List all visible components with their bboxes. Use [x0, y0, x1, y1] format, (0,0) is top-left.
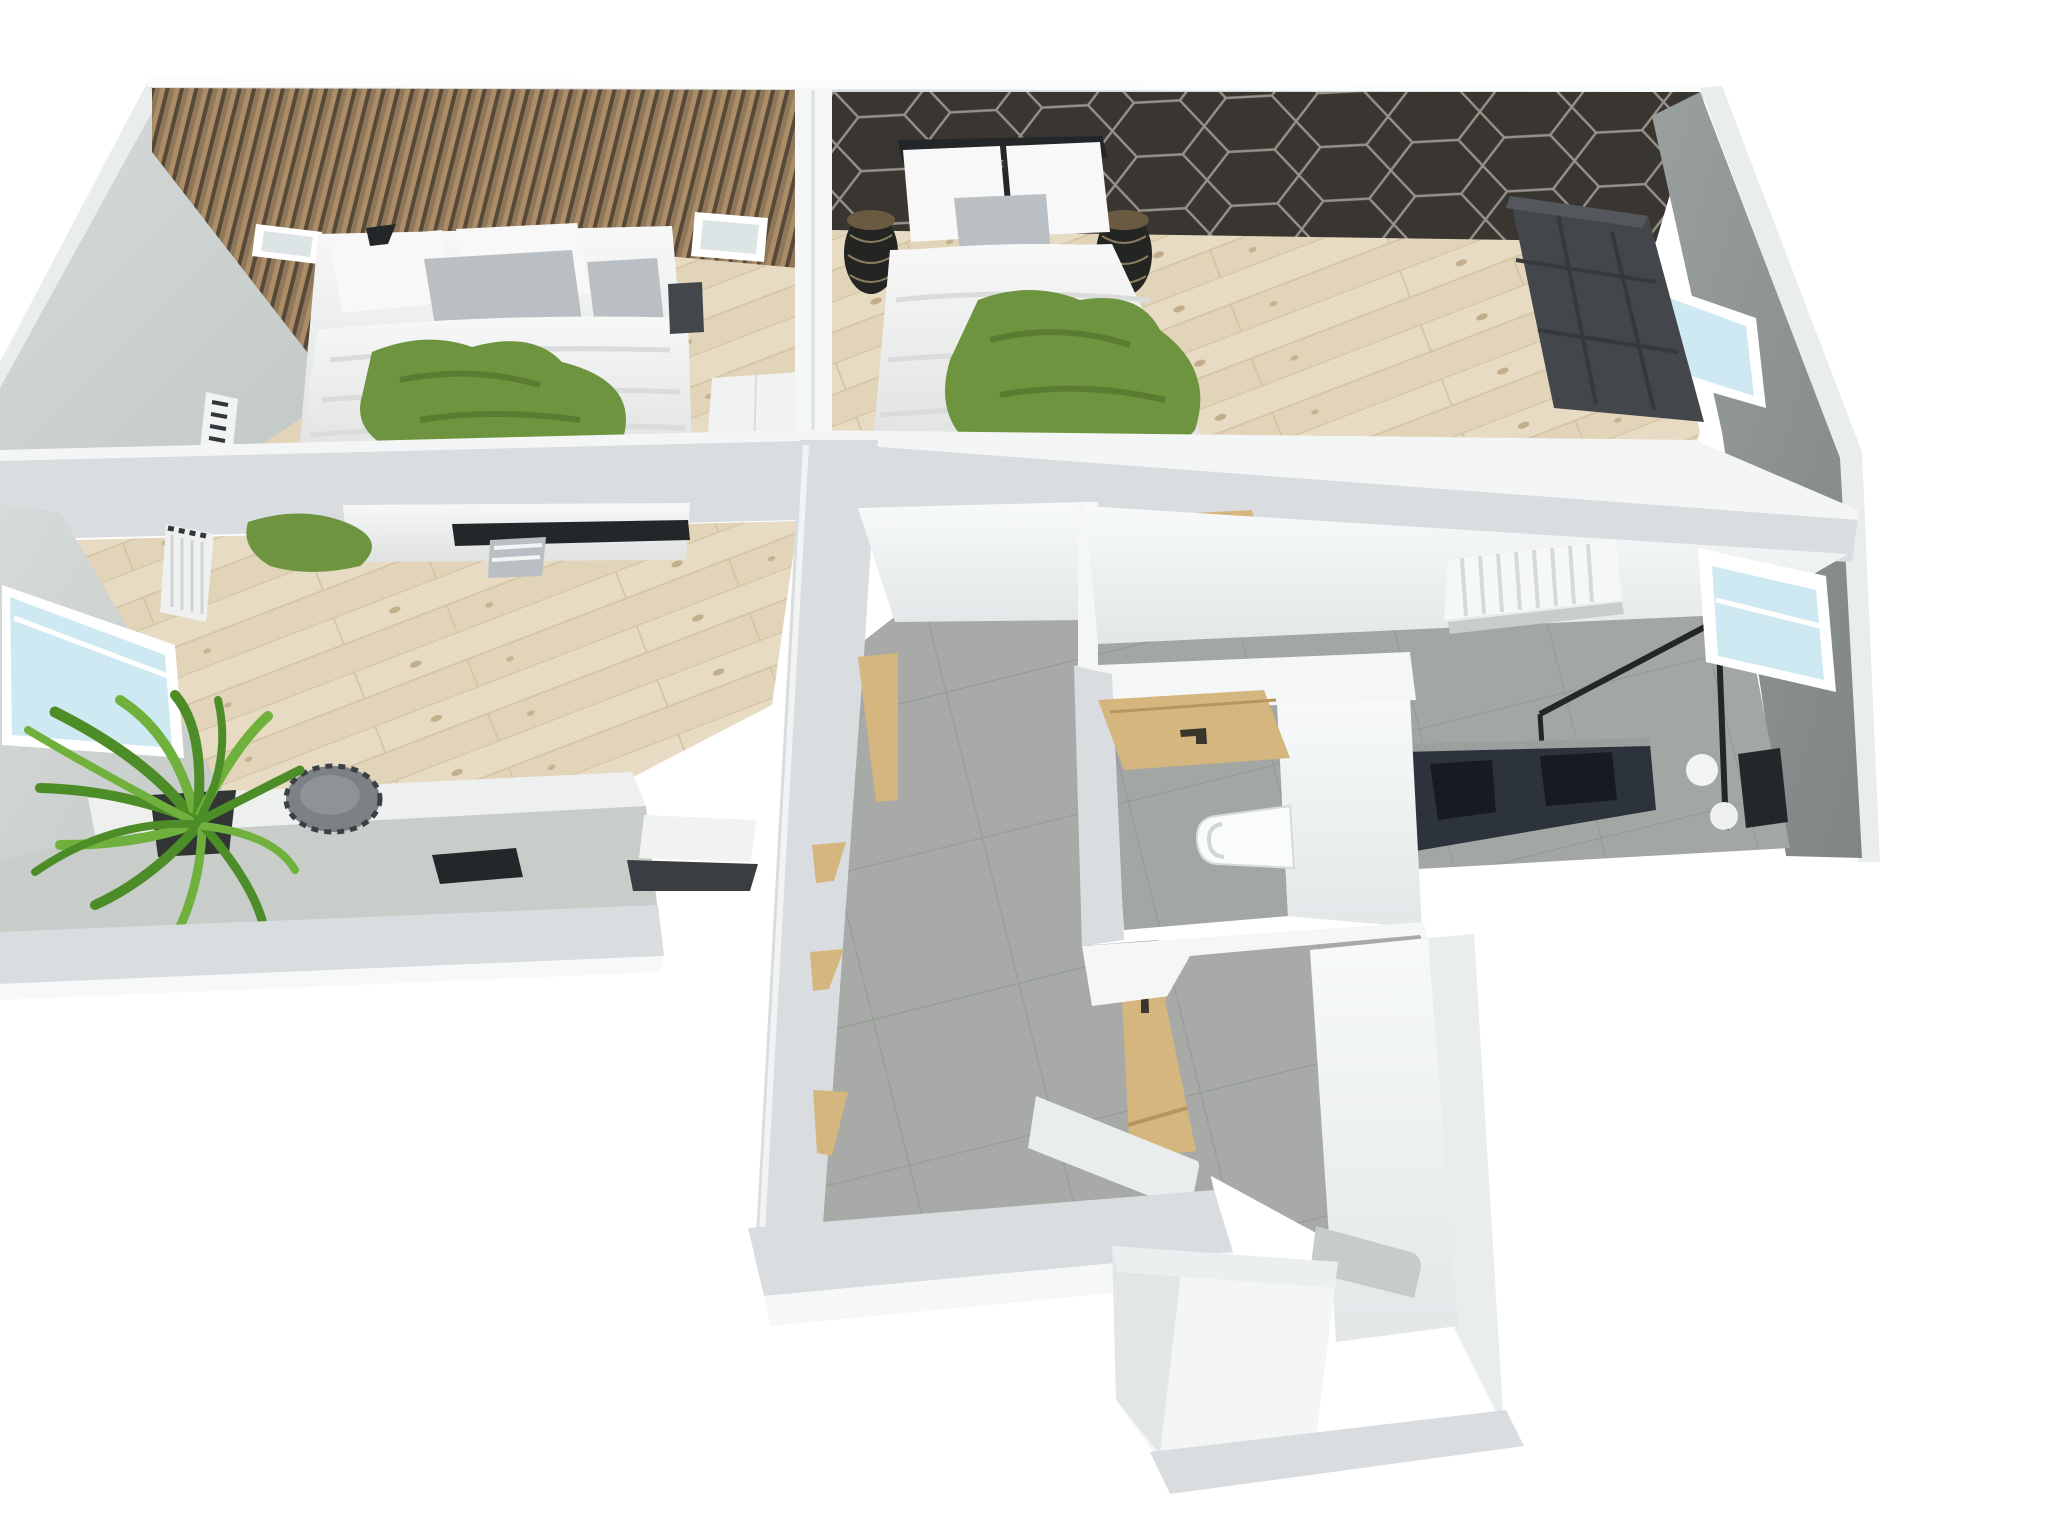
bath-mat [1738, 748, 1788, 828]
floorplan-svg [0, 0, 2048, 1538]
floorplan-render [0, 0, 2048, 1538]
hallway-north-wall [858, 502, 1085, 622]
wc-east-wall [1277, 698, 1422, 928]
round-stool [286, 766, 380, 832]
dark-bench [627, 860, 758, 891]
side-table-white [639, 815, 756, 862]
wc-door [1098, 690, 1290, 770]
wall-light-1 [1686, 754, 1718, 786]
bedside-table-1 [668, 282, 704, 334]
radiator-2 [160, 524, 214, 622]
bed-1 [298, 223, 692, 463]
skylight-window-2 [691, 212, 768, 262]
wall-light-2 [1710, 802, 1738, 830]
